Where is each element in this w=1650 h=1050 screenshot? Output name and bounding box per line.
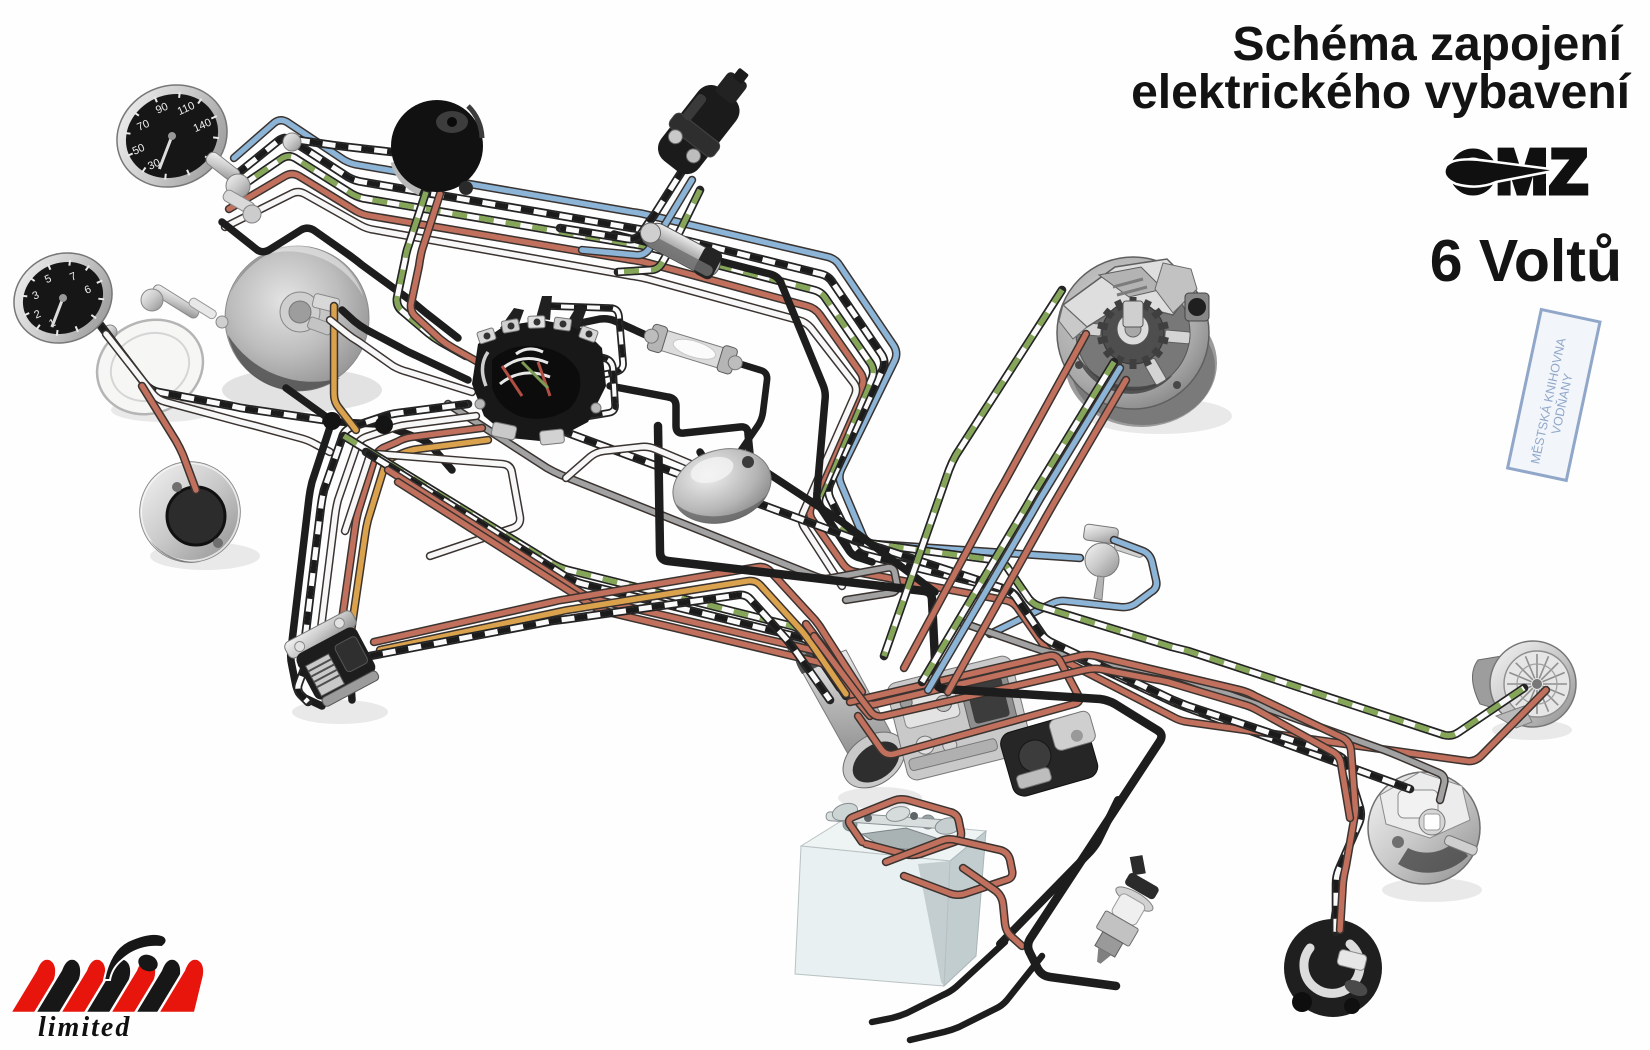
svg-text:limited: limited [38, 1012, 131, 1043]
svg-text:Schéma zapojení: Schéma zapojení [1233, 18, 1624, 71]
svg-text:6 Voltů: 6 Voltů [1430, 228, 1622, 294]
svg-text:elektrického vybavení: elektrického vybavení [1131, 66, 1632, 119]
